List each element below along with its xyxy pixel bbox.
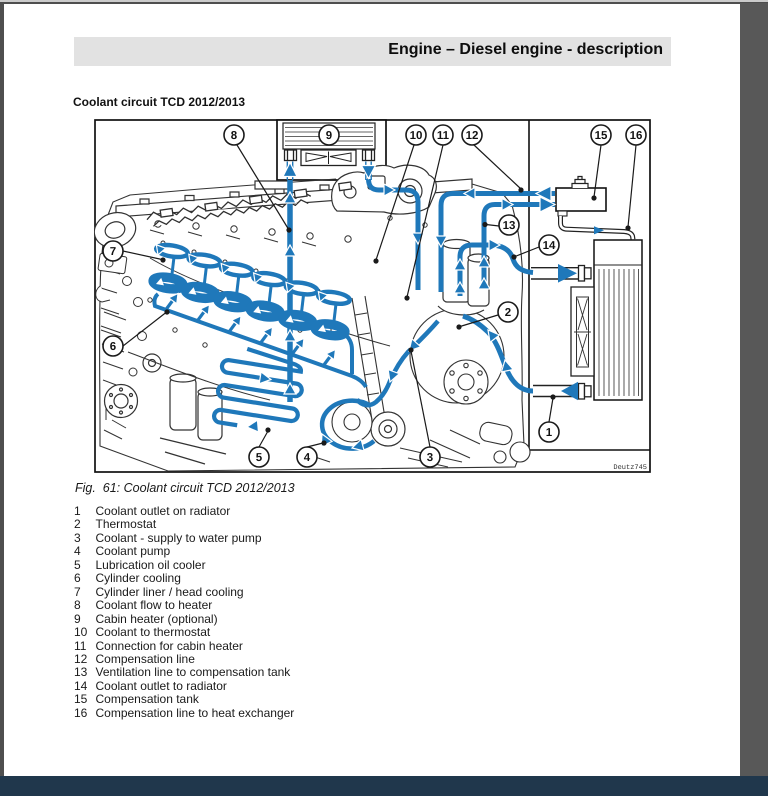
svg-text:Deutz745: Deutz745	[613, 464, 647, 472]
svg-text:10: 10	[410, 130, 423, 142]
svg-text:6: 6	[110, 341, 116, 353]
svg-text:15: 15	[595, 130, 608, 142]
svg-text:13: 13	[503, 220, 516, 232]
svg-text:2: 2	[505, 307, 511, 319]
svg-text:4: 4	[304, 452, 311, 464]
svg-text:9: 9	[326, 130, 332, 142]
svg-text:8: 8	[231, 130, 238, 142]
svg-text:7: 7	[110, 246, 116, 258]
svg-text:16: 16	[630, 130, 643, 142]
svg-text:3: 3	[427, 452, 433, 464]
svg-text:14: 14	[543, 240, 556, 252]
svg-text:11: 11	[437, 130, 450, 142]
svg-text:1: 1	[546, 427, 553, 439]
svg-text:12: 12	[466, 130, 479, 142]
svg-text:5: 5	[256, 452, 263, 464]
